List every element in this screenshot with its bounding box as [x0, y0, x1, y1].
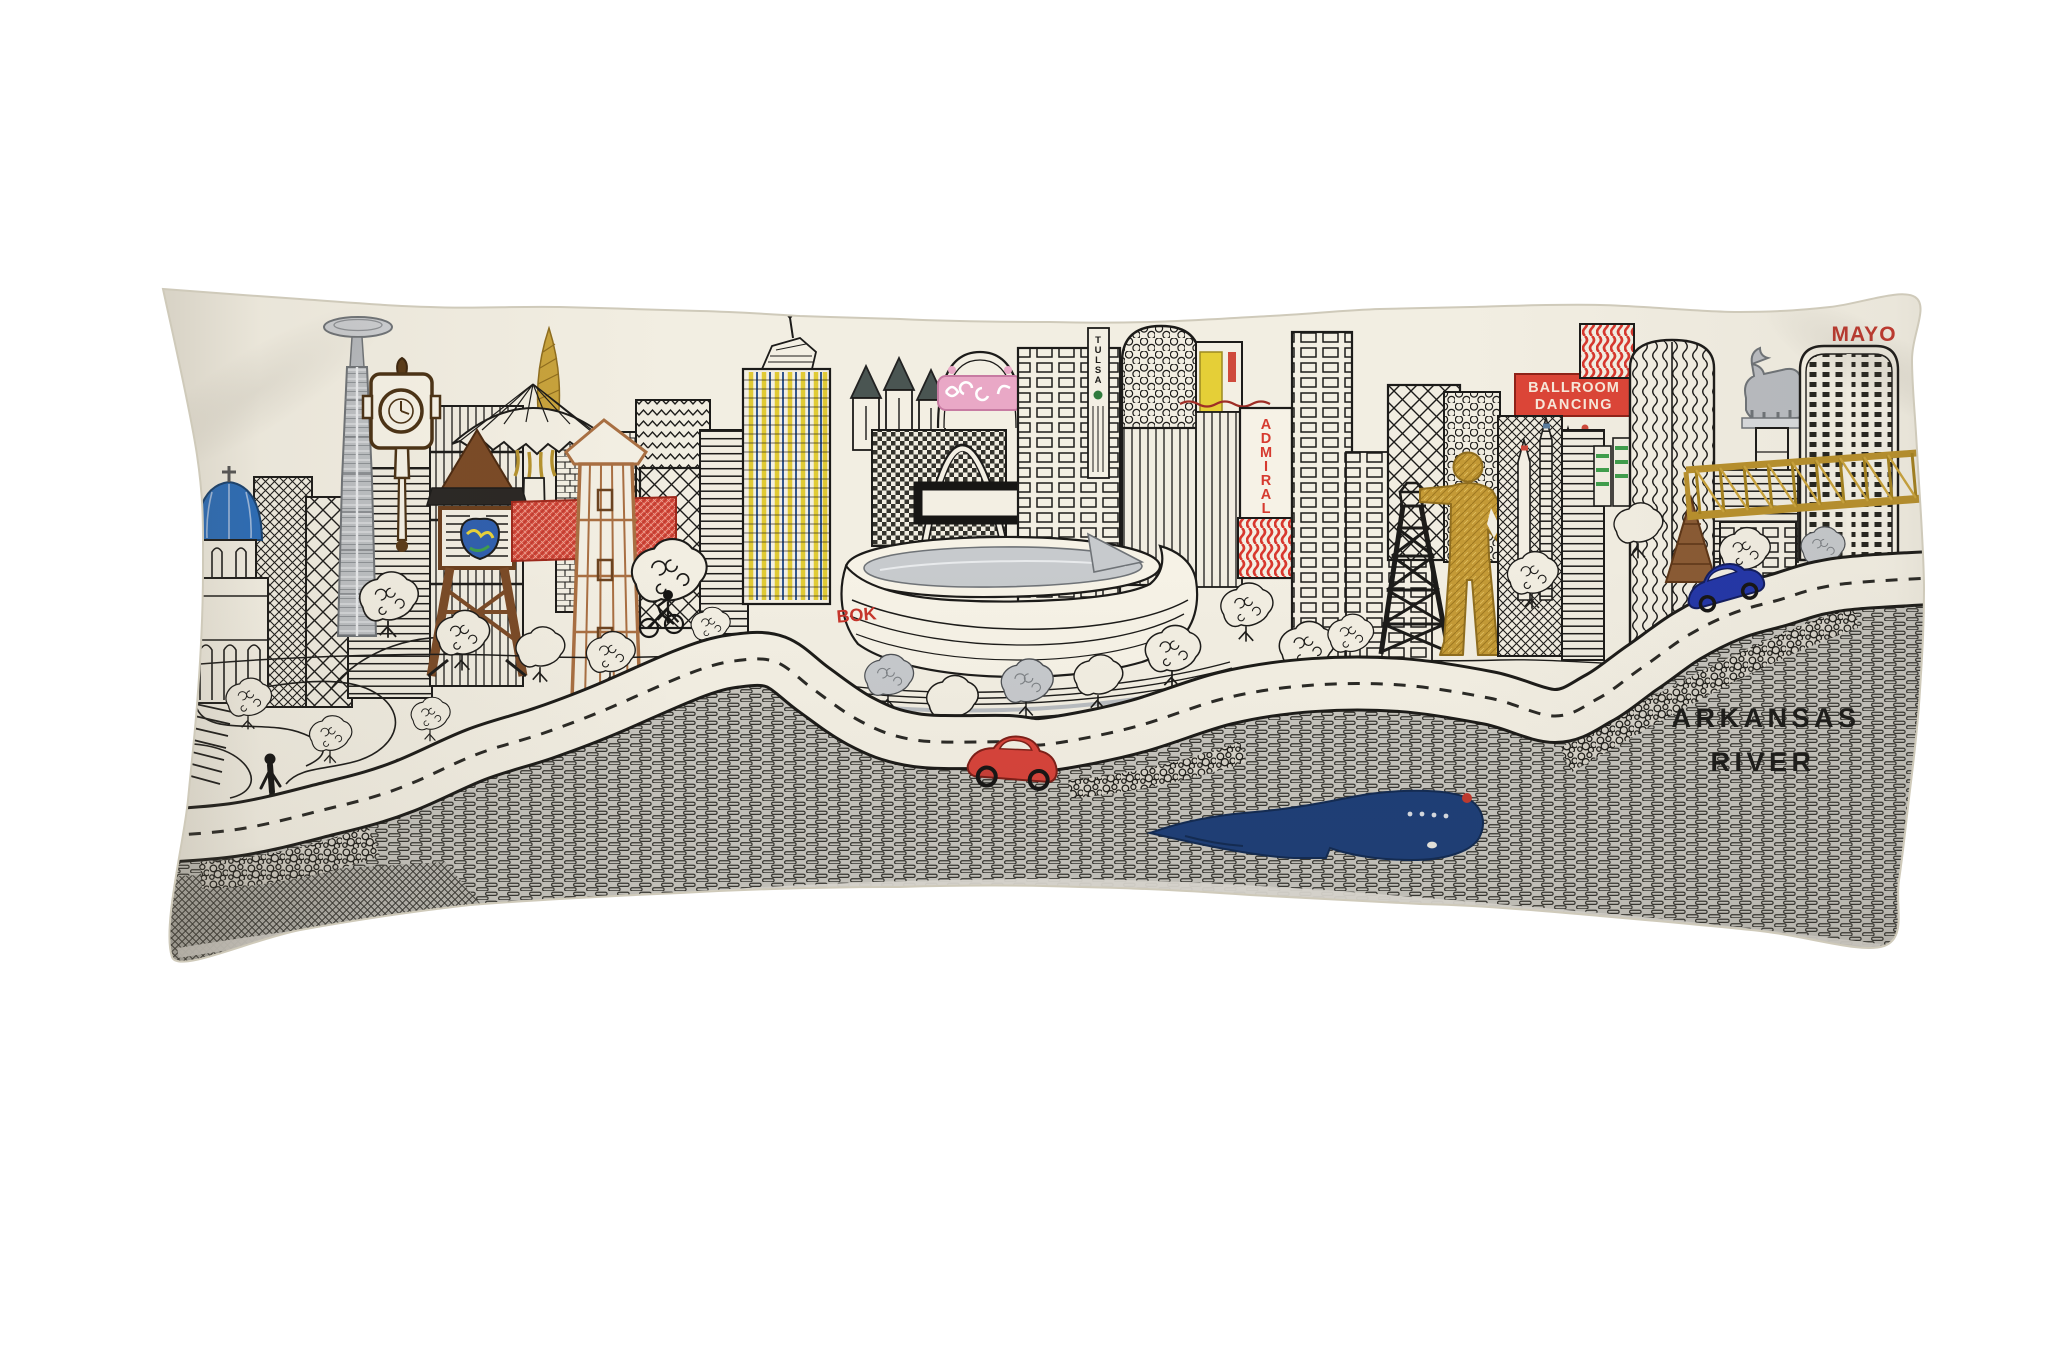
svg-text:A: A [1095, 375, 1102, 386]
svg-text:L: L [1262, 501, 1271, 517]
